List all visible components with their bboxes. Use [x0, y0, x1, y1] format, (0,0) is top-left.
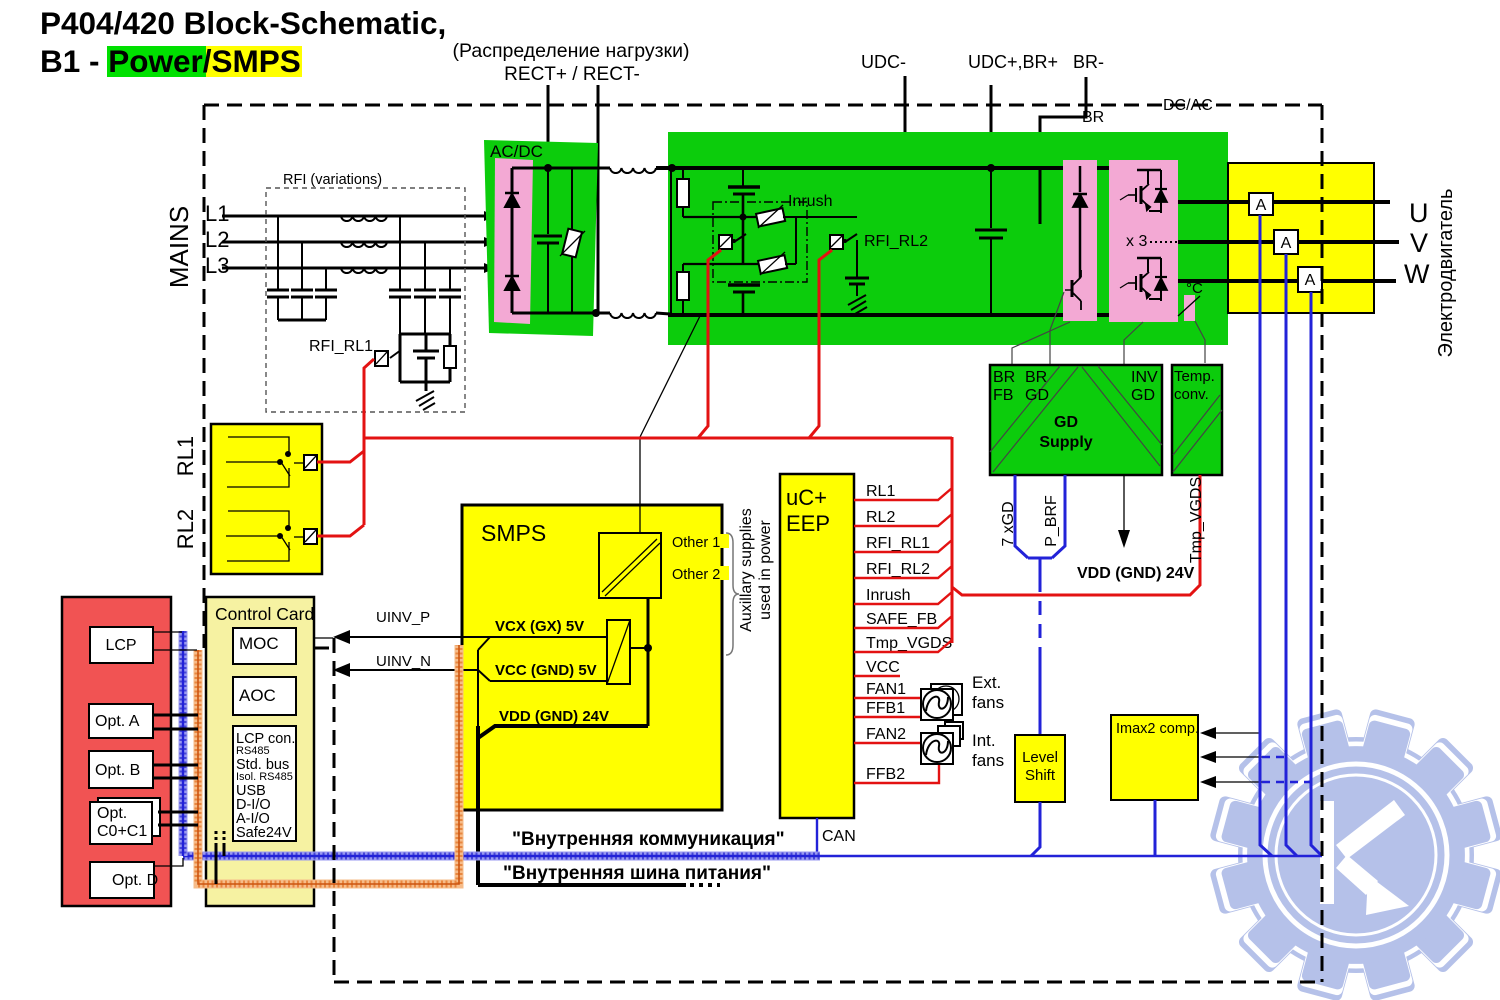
svg-text:SAFE_FB: SAFE_FB [866, 611, 937, 628]
svg-text:P_BRF: P_BRF [1043, 495, 1060, 547]
svg-text:conv.: conv. [1174, 386, 1209, 403]
svg-text:Imax2 comp.: Imax2 comp. [1116, 721, 1199, 737]
svg-text:U: U [1409, 198, 1429, 228]
svg-text:DC/AC: DC/AC [1163, 97, 1213, 114]
svg-text:Other 1: Other 1 [672, 535, 720, 551]
svg-text:W: W [1404, 259, 1430, 289]
svg-text:RFI_RL2: RFI_RL2 [864, 233, 928, 250]
svg-text:P404/420 Block-Schematic,: P404/420 Block-Schematic, [40, 5, 446, 41]
svg-text:Inrush: Inrush [788, 193, 832, 210]
svg-text:fans: fans [972, 751, 1004, 770]
svg-text:Ext.: Ext. [972, 673, 1001, 692]
svg-text:INV: INV [1131, 369, 1158, 386]
svg-text:GD: GD [1025, 387, 1049, 404]
svg-text:fans: fans [972, 693, 1004, 712]
svg-text:A: A [1256, 197, 1267, 214]
svg-text:RL1: RL1 [173, 436, 198, 476]
svg-text:BR: BR [1082, 109, 1104, 126]
svg-text:AC/DC: AC/DC [490, 142, 543, 161]
svg-text:LCP: LCP [105, 637, 136, 654]
svg-text:VCC: VCC [866, 659, 900, 676]
svg-text:Электродвигатель: Электродвигатель [1435, 189, 1457, 358]
svg-text:RS485: RS485 [236, 745, 270, 757]
svg-text:AOC: AOC [239, 686, 276, 705]
svg-text:Shift: Shift [1025, 767, 1056, 784]
svg-text:FAN2: FAN2 [866, 726, 906, 743]
svg-text:BR-: BR- [1073, 52, 1104, 72]
svg-text:x 3: x 3 [1126, 233, 1147, 250]
svg-text:Auxillary supplies: Auxillary supplies [738, 508, 755, 632]
svg-text:RL2: RL2 [866, 509, 895, 526]
svg-text:Control Card: Control Card [215, 604, 314, 624]
svg-text:"Внутренняя коммуникация": "Внутренняя коммуникация" [512, 829, 785, 850]
svg-text:C0+C1: C0+C1 [97, 823, 147, 840]
svg-text:uC+: uC+ [786, 485, 827, 510]
svg-text:Opt. A: Opt. A [95, 713, 140, 730]
svg-text:RL2: RL2 [173, 509, 198, 549]
svg-text:used in power: used in power [757, 520, 774, 620]
svg-text:RFI (variations): RFI (variations) [283, 172, 382, 188]
svg-text:B1 - Power/SMPS: B1 - Power/SMPS [40, 43, 301, 79]
svg-text:VCC (GND) 5V: VCC (GND) 5V [495, 662, 597, 679]
svg-text:UINV_P: UINV_P [376, 609, 430, 626]
svg-text:Level: Level [1022, 749, 1058, 766]
svg-text:FAN1: FAN1 [866, 681, 906, 698]
svg-text:MOC: MOC [239, 634, 279, 653]
svg-text:Opt.: Opt. [97, 805, 127, 822]
svg-text:UDC+,BR+: UDC+,BR+ [968, 52, 1058, 72]
svg-text:Isol. RS485: Isol. RS485 [236, 771, 293, 783]
svg-text:RFI_RL2: RFI_RL2 [866, 561, 930, 578]
svg-text:VDD (GND) 24V: VDD (GND) 24V [1077, 565, 1195, 582]
svg-text:Temp.: Temp. [1174, 368, 1215, 385]
svg-text:Opt. D: Opt. D [112, 872, 158, 889]
svg-text:L3: L3 [205, 253, 229, 278]
svg-text:CAN: CAN [822, 828, 856, 845]
svg-text:SMPS: SMPS [481, 520, 546, 546]
svg-text:L2: L2 [205, 227, 229, 252]
svg-text:FFB1: FFB1 [866, 700, 905, 717]
svg-text:Int.: Int. [972, 731, 996, 750]
svg-text:GD: GD [1054, 414, 1078, 431]
svg-text:A: A [1281, 235, 1292, 252]
svg-text:Tmp_VGDS: Tmp_VGDS [1188, 477, 1205, 563]
svg-text:"Внутренняя шина питания": "Внутренняя шина питания" [503, 863, 771, 884]
svg-text:A: A [1305, 272, 1316, 289]
svg-text:UINV_N: UINV_N [376, 653, 431, 670]
svg-text:FB: FB [993, 387, 1013, 404]
svg-text:UDC-: UDC- [861, 52, 906, 72]
svg-text:BR: BR [1025, 369, 1047, 386]
svg-text:Opt. B: Opt. B [95, 762, 140, 779]
svg-text:RECT+ / RECT-: RECT+ / RECT- [504, 64, 640, 85]
svg-text:RFI_RL1: RFI_RL1 [309, 338, 373, 355]
svg-text:Safe24V: Safe24V [236, 825, 292, 841]
svg-text:7 xGD: 7 xGD [1000, 501, 1017, 546]
svg-text:MAINS: MAINS [164, 206, 194, 288]
svg-text:RFI_RL1: RFI_RL1 [866, 535, 930, 552]
svg-text:V: V [1410, 228, 1428, 258]
svg-text:GD: GD [1131, 387, 1155, 404]
svg-text:Other 2: Other 2 [672, 567, 720, 583]
svg-text:FFB2: FFB2 [866, 766, 905, 783]
svg-text:BR: BR [993, 369, 1015, 386]
svg-text:L1: L1 [205, 201, 229, 226]
svg-text:RL1: RL1 [866, 483, 895, 500]
svg-text:Inrush: Inrush [866, 587, 910, 604]
svg-text:VCX (GX) 5V: VCX (GX) 5V [495, 618, 584, 635]
svg-text:VDD (GND) 24V: VDD (GND) 24V [499, 708, 609, 725]
svg-text:Supply: Supply [1039, 434, 1092, 451]
svg-text:(Распределение нагрузки): (Распределение нагрузки) [453, 40, 690, 62]
svg-text:EEP: EEP [786, 511, 830, 536]
